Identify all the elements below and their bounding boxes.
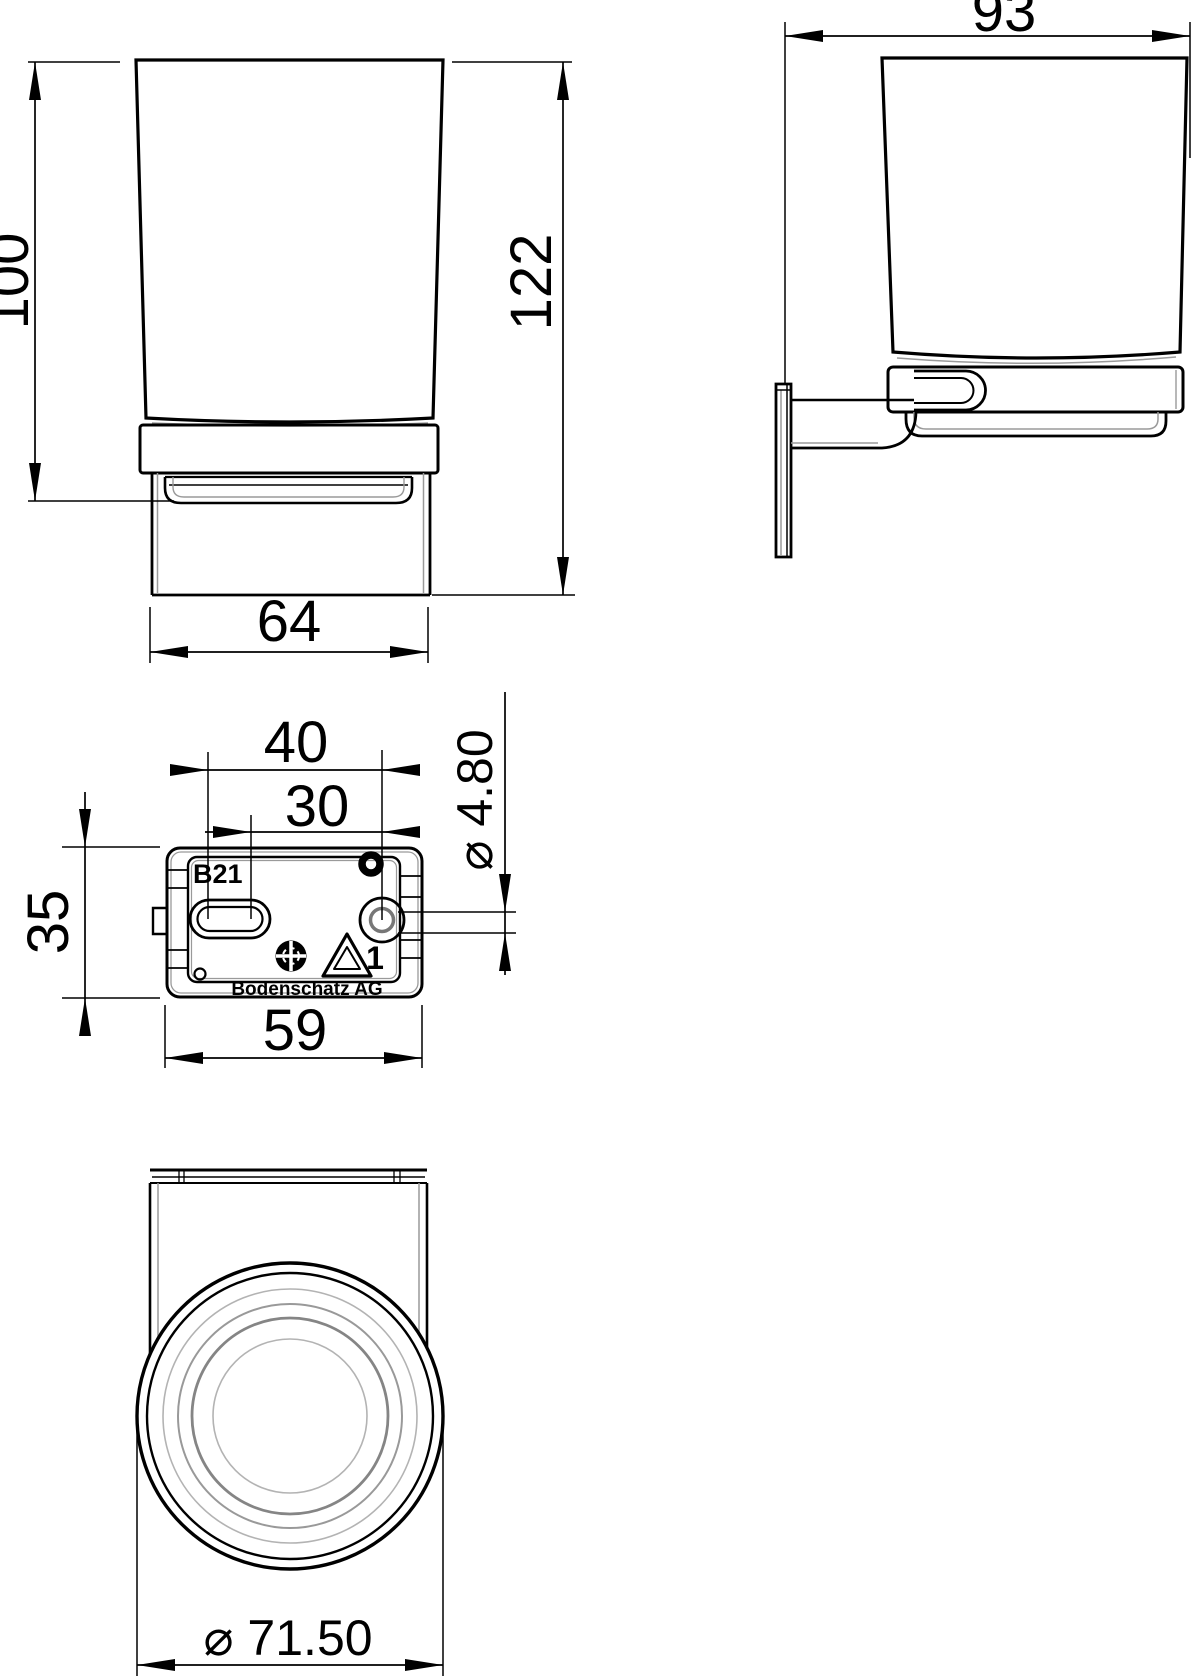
- plate-code-text: B21: [193, 859, 243, 889]
- plate-slot-hole-outer: [190, 900, 270, 938]
- side-view: 93: [776, 0, 1190, 557]
- recycling-icon: [323, 934, 371, 976]
- dim-total-height: 122: [432, 62, 575, 595]
- dim-label-100: 100: [0, 233, 41, 330]
- dim-label-35: 35: [16, 890, 81, 955]
- dim-label-4-80: ⌀ 4.80: [447, 729, 503, 870]
- front-dish-inner: [173, 477, 404, 497]
- bottom-glass-circles: [137, 1263, 443, 1569]
- front-view: 100 122 64: [0, 60, 575, 663]
- dim-plate-height: 35: [16, 792, 160, 1036]
- side-dish-inner: [914, 412, 1158, 429]
- side-bracket-hook-outer: [914, 371, 986, 410]
- dim-label-59: 59: [263, 998, 328, 1063]
- drawing-canvas: 100 122 64: [0, 0, 1198, 1678]
- front-holder-ring: [140, 425, 438, 473]
- dim-label-64: 64: [257, 589, 322, 654]
- plate-pin-mark: [195, 969, 206, 980]
- dim-glass-height: 100: [0, 62, 174, 501]
- side-bracket-hook-inner: [914, 378, 973, 403]
- dim-label-71-50: ⌀ 71.50: [203, 1610, 372, 1666]
- plate-clip-tab: [153, 908, 167, 934]
- dim-label-30: 30: [285, 774, 350, 839]
- dim-holder-width: 64: [150, 589, 428, 663]
- side-glass-outline: [882, 58, 1187, 358]
- bottom-view: ⌀ 71.50: [137, 1170, 443, 1676]
- side-holder-flange: [888, 367, 1183, 412]
- front-dish-outline: [165, 477, 412, 503]
- side-dish-outline: [906, 412, 1166, 436]
- mold-clock-icon: [276, 941, 307, 972]
- plate-mold-number: 1: [366, 940, 384, 976]
- dim-label-122: 122: [499, 234, 564, 331]
- dim-plate-width: 59: [165, 998, 422, 1068]
- front-glass-outline: [136, 60, 443, 422]
- side-wall-plate: [776, 384, 791, 557]
- plate-ring-marker: [362, 855, 380, 873]
- plate-brand-text: Bodenschatz AG: [231, 979, 382, 1000]
- technical-drawing-sheet: 100 122 64: [0, 0, 1198, 1678]
- dim-label-40: 40: [264, 710, 329, 775]
- dim-label-93: 93: [972, 0, 1037, 44]
- mounting-plate-view: B21 1 Bodenschatz AG 40 30 35: [16, 692, 516, 1068]
